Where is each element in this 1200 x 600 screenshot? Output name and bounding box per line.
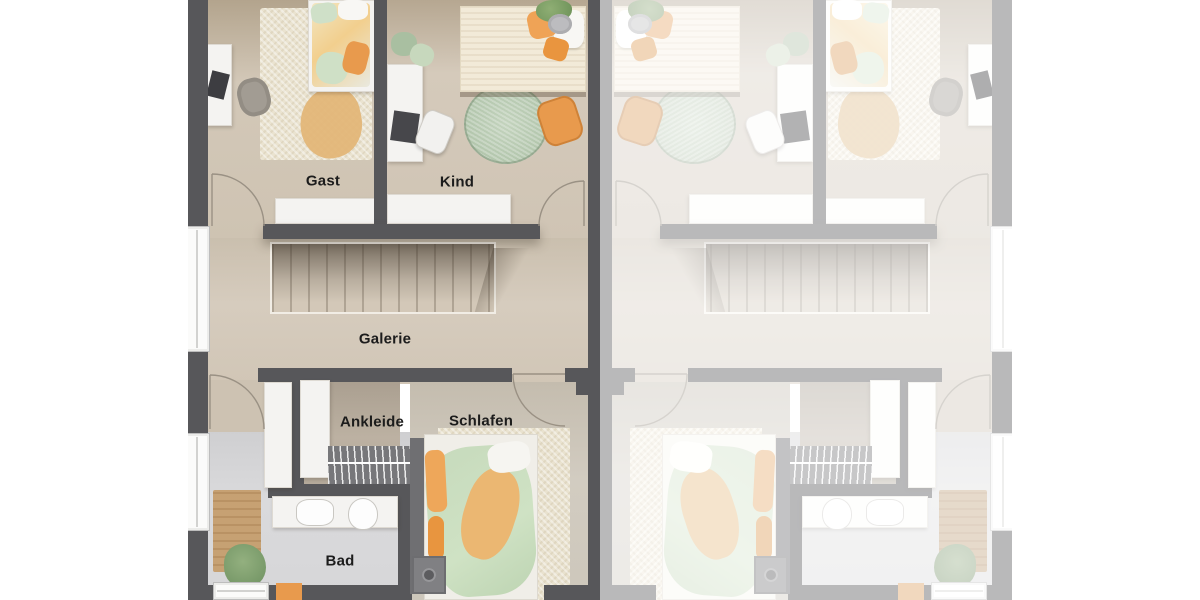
floorplan-half-mirrored <box>600 0 1012 600</box>
window-left-upper <box>188 226 210 352</box>
floorplan-half-left <box>188 0 600 600</box>
window-left-upper <box>990 226 1012 352</box>
window-left-lower <box>990 433 1012 531</box>
window-left-lower <box>188 433 210 531</box>
window-bottom <box>931 582 987 600</box>
door-arcs <box>188 0 600 600</box>
wall-party-middle <box>588 0 600 600</box>
window-bottom <box>213 582 269 600</box>
door-arcs <box>600 0 1012 600</box>
floorplan-canvas: Gast Kind Galerie Ankleide Schlafen Bad <box>0 0 1200 600</box>
wall-party-middle <box>600 0 612 600</box>
floorplan-half-right-faded <box>600 0 1012 600</box>
